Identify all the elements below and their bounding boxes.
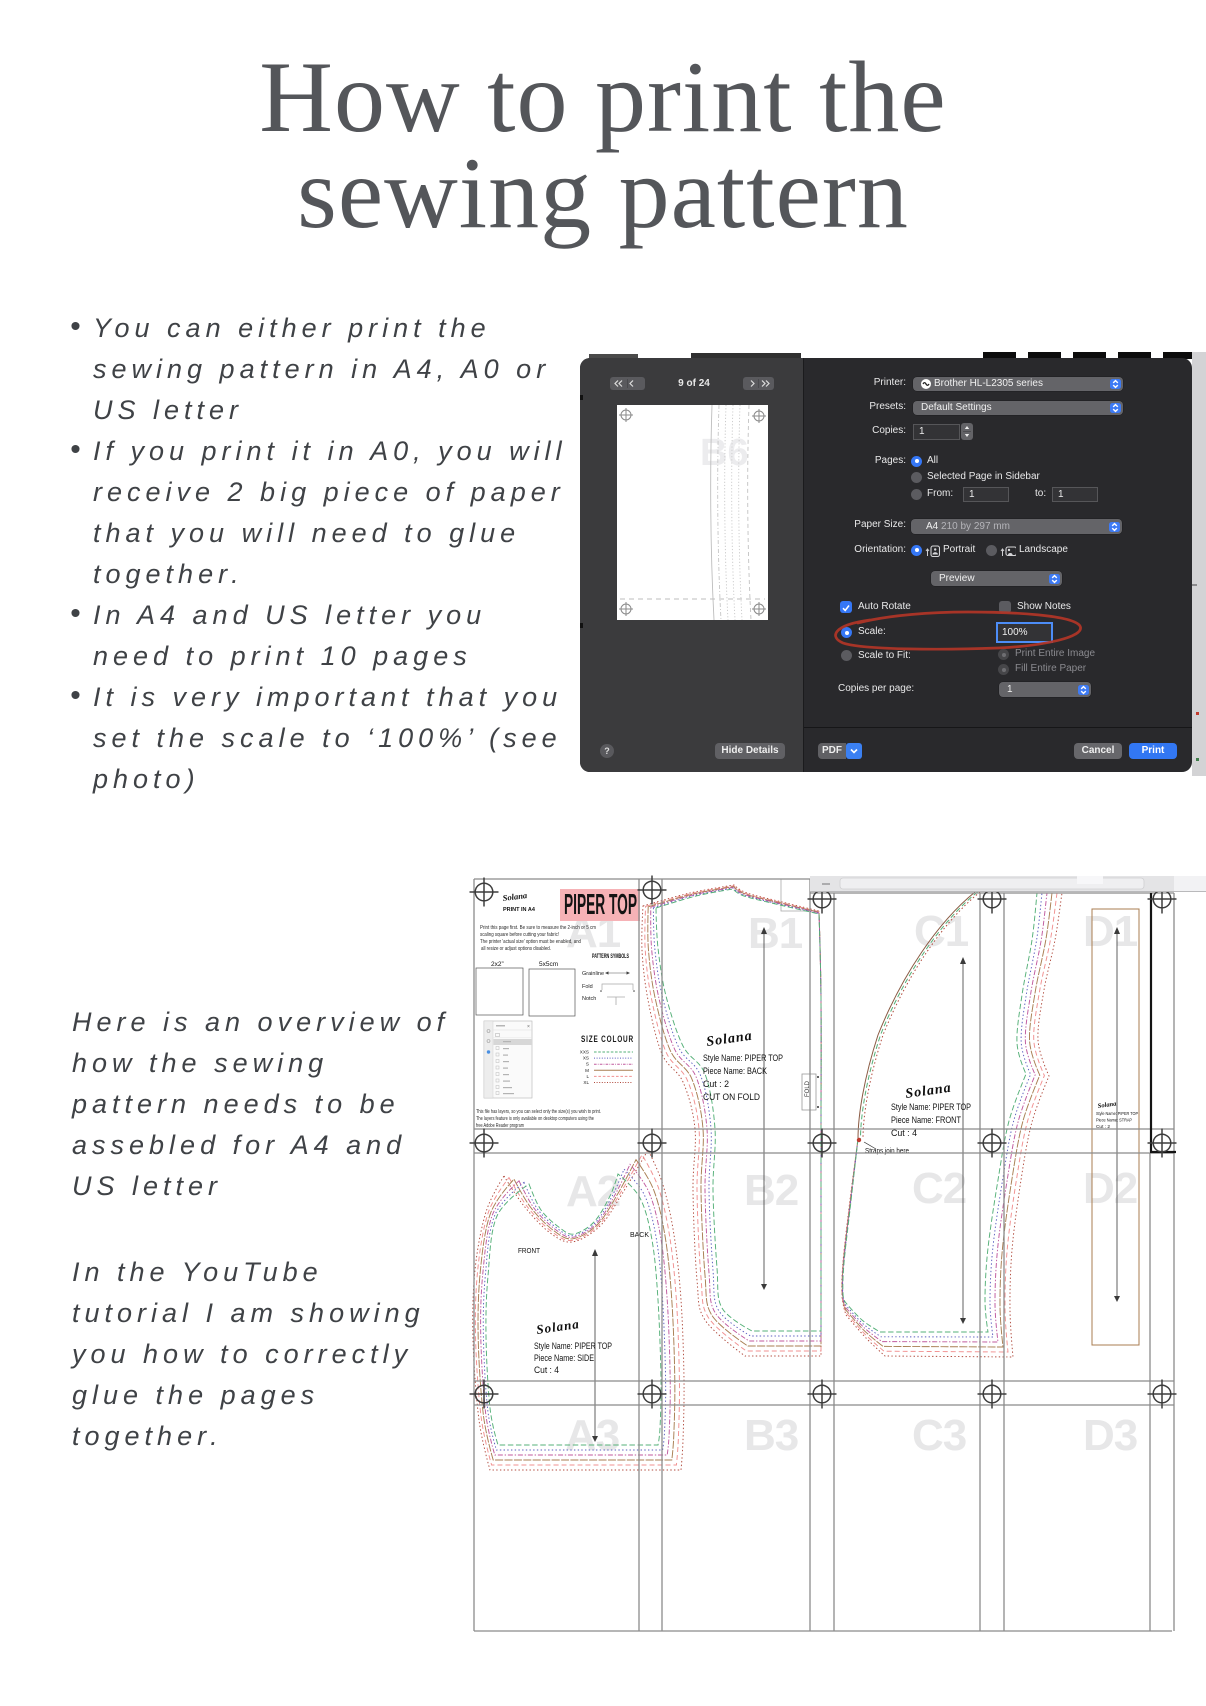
svg-text:B6: B6 [700, 432, 749, 474]
svg-text:Solana: Solana [904, 1081, 952, 1102]
svg-text:Solana: Solana [705, 1029, 753, 1050]
svg-text:B2: B2 [744, 1166, 798, 1215]
svg-text:all resize or adjust options d: all resize or adjust options disabled. [481, 946, 551, 952]
svg-text:Piece Name: BACK: Piece Name: BACK [703, 1066, 767, 1076]
svg-text:×: × [527, 1024, 530, 1030]
svg-text:D3: D3 [1083, 1411, 1137, 1460]
svg-text:Print this page first. Be sure: Print this page first. Be sure to measur… [480, 925, 596, 931]
svg-text:Fold: Fold [582, 984, 593, 990]
svg-text:M: M [585, 1068, 589, 1073]
svg-text:Notch: Notch [582, 996, 596, 1002]
svg-text:XXS: XXS [580, 1050, 589, 1055]
svg-text:CUT ON FOLD: CUT ON FOLD [703, 1092, 760, 1102]
svg-text:Cut : 4: Cut : 4 [534, 1365, 559, 1375]
svg-text:A3: A3 [565, 1411, 619, 1460]
svg-text:XS: XS [583, 1056, 589, 1061]
svg-text:B1: B1 [748, 909, 803, 958]
svg-text:PATTERN SYMBOLS: PATTERN SYMBOLS [592, 954, 629, 960]
svg-text:Piece Name: STRAP: Piece Name: STRAP [1096, 1118, 1132, 1123]
svg-text:This file has layers, so you c: This file has layers, so you can select … [476, 1109, 601, 1115]
svg-text:The layers feature is only ava: The layers feature is only available on … [476, 1116, 594, 1122]
svg-text:BACK: BACK [630, 1232, 649, 1239]
svg-text:SIZE COLOUR: SIZE COLOUR [581, 1034, 634, 1045]
svg-text:C2: C2 [912, 1164, 966, 1213]
svg-text:Solana: Solana [535, 1316, 580, 1337]
svg-text:Cut : 2: Cut : 2 [703, 1079, 729, 1089]
svg-text:PIPER TOP: PIPER TOP [564, 889, 637, 921]
svg-text:Solana: Solana [1097, 1100, 1117, 1110]
svg-text:Style Name: PIPER TOP: Style Name: PIPER TOP [891, 1102, 971, 1112]
svg-text:2x2”: 2x2” [491, 961, 504, 968]
svg-text:S: S [586, 1062, 589, 1067]
svg-text:Style Name: PIPER TOP: Style Name: PIPER TOP [534, 1341, 612, 1351]
svg-text:XL: XL [583, 1080, 589, 1085]
svg-text:Solana: Solana [502, 890, 528, 903]
svg-text:Cut : 2: Cut : 2 [1096, 1124, 1110, 1129]
svg-text:C3: C3 [912, 1411, 966, 1460]
svg-text:L: L [586, 1074, 589, 1079]
svg-text:D1: D1 [1083, 907, 1138, 956]
svg-text:Piece Name: FRONT: Piece Name: FRONT [891, 1115, 961, 1125]
svg-text:Grainline: Grainline [582, 971, 604, 977]
svg-text:FRONT: FRONT [518, 1248, 541, 1255]
svg-text:scaling square before cutting: scaling square before cutting your fabri… [480, 932, 559, 938]
svg-text:Piece Name: SIDE: Piece Name: SIDE [534, 1353, 594, 1363]
svg-text:5x5cm: 5x5cm [539, 961, 558, 968]
svg-text:Style Name: PIPER TOP: Style Name: PIPER TOP [1096, 1111, 1138, 1116]
svg-text:Style Name: PIPER TOP: Style Name: PIPER TOP [703, 1053, 783, 1063]
svg-text:The printer 'actual size' opti: The printer 'actual size' option must be… [480, 939, 581, 945]
svg-text:D2: D2 [1083, 1164, 1137, 1213]
svg-text:PRINT IN A4: PRINT IN A4 [503, 907, 536, 913]
svg-text:B3: B3 [744, 1411, 798, 1460]
svg-text:free Adobe Reader program: free Adobe Reader program [476, 1123, 524, 1129]
